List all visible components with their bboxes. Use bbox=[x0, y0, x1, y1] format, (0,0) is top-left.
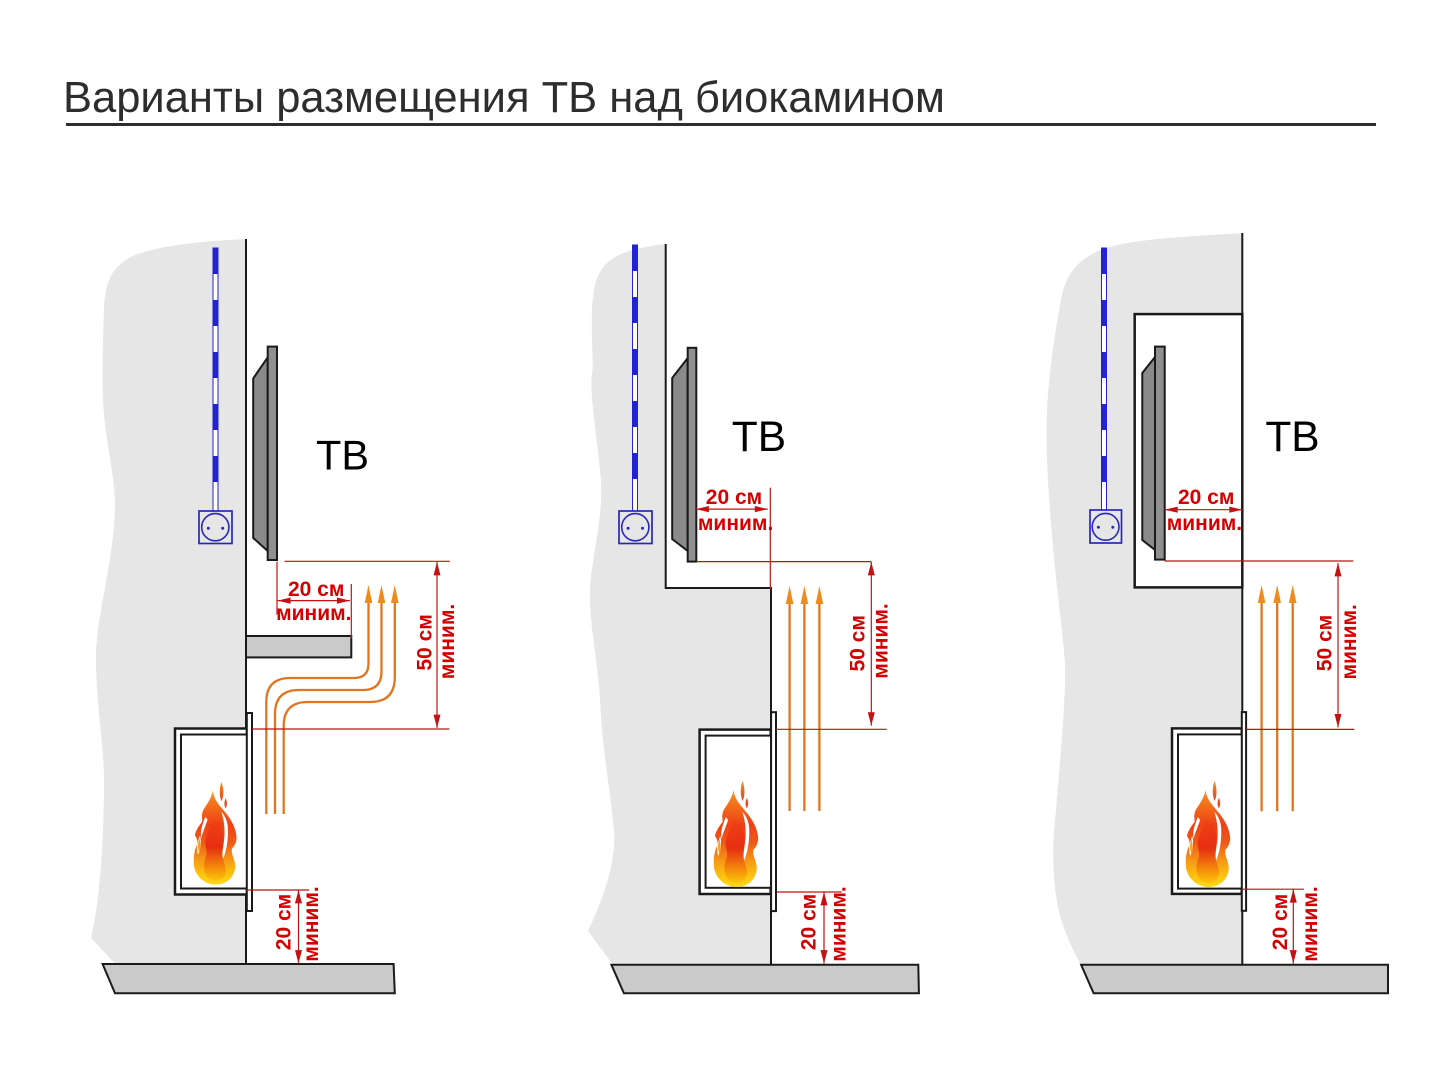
svg-text:миним.: миним. bbox=[300, 886, 323, 961]
svg-text:миним.: миним. bbox=[276, 602, 351, 625]
svg-text:ТВ: ТВ bbox=[1265, 414, 1319, 461]
svg-text:50 см: 50 см bbox=[1314, 615, 1337, 671]
svg-text:миним.: миним. bbox=[869, 603, 892, 678]
svg-text:20 см: 20 см bbox=[273, 894, 296, 950]
svg-text:50 см: 50 см bbox=[413, 614, 436, 670]
svg-text:ТВ: ТВ bbox=[316, 432, 369, 479]
svg-text:ТВ: ТВ bbox=[732, 414, 786, 461]
svg-text:20 см: 20 см bbox=[798, 894, 821, 950]
svg-text:миним.: миним. bbox=[1338, 604, 1361, 679]
svg-text:Варианты размещения ТВ над био: Варианты размещения ТВ над биокамином bbox=[63, 74, 945, 122]
svg-text:миним.: миним. bbox=[828, 886, 851, 961]
svg-text:миним.: миним. bbox=[698, 512, 773, 535]
svg-text:миним.: миним. bbox=[1167, 512, 1242, 535]
svg-text:20 см: 20 см bbox=[1269, 894, 1292, 950]
svg-text:20 см: 20 см bbox=[706, 486, 762, 509]
svg-text:миним.: миним. bbox=[436, 604, 459, 679]
svg-text:20 см: 20 см bbox=[288, 578, 344, 601]
svg-text:миним.: миним. bbox=[1299, 886, 1322, 961]
svg-text:50 см: 50 см bbox=[846, 615, 869, 671]
svg-text:20 см: 20 см bbox=[1178, 486, 1234, 509]
